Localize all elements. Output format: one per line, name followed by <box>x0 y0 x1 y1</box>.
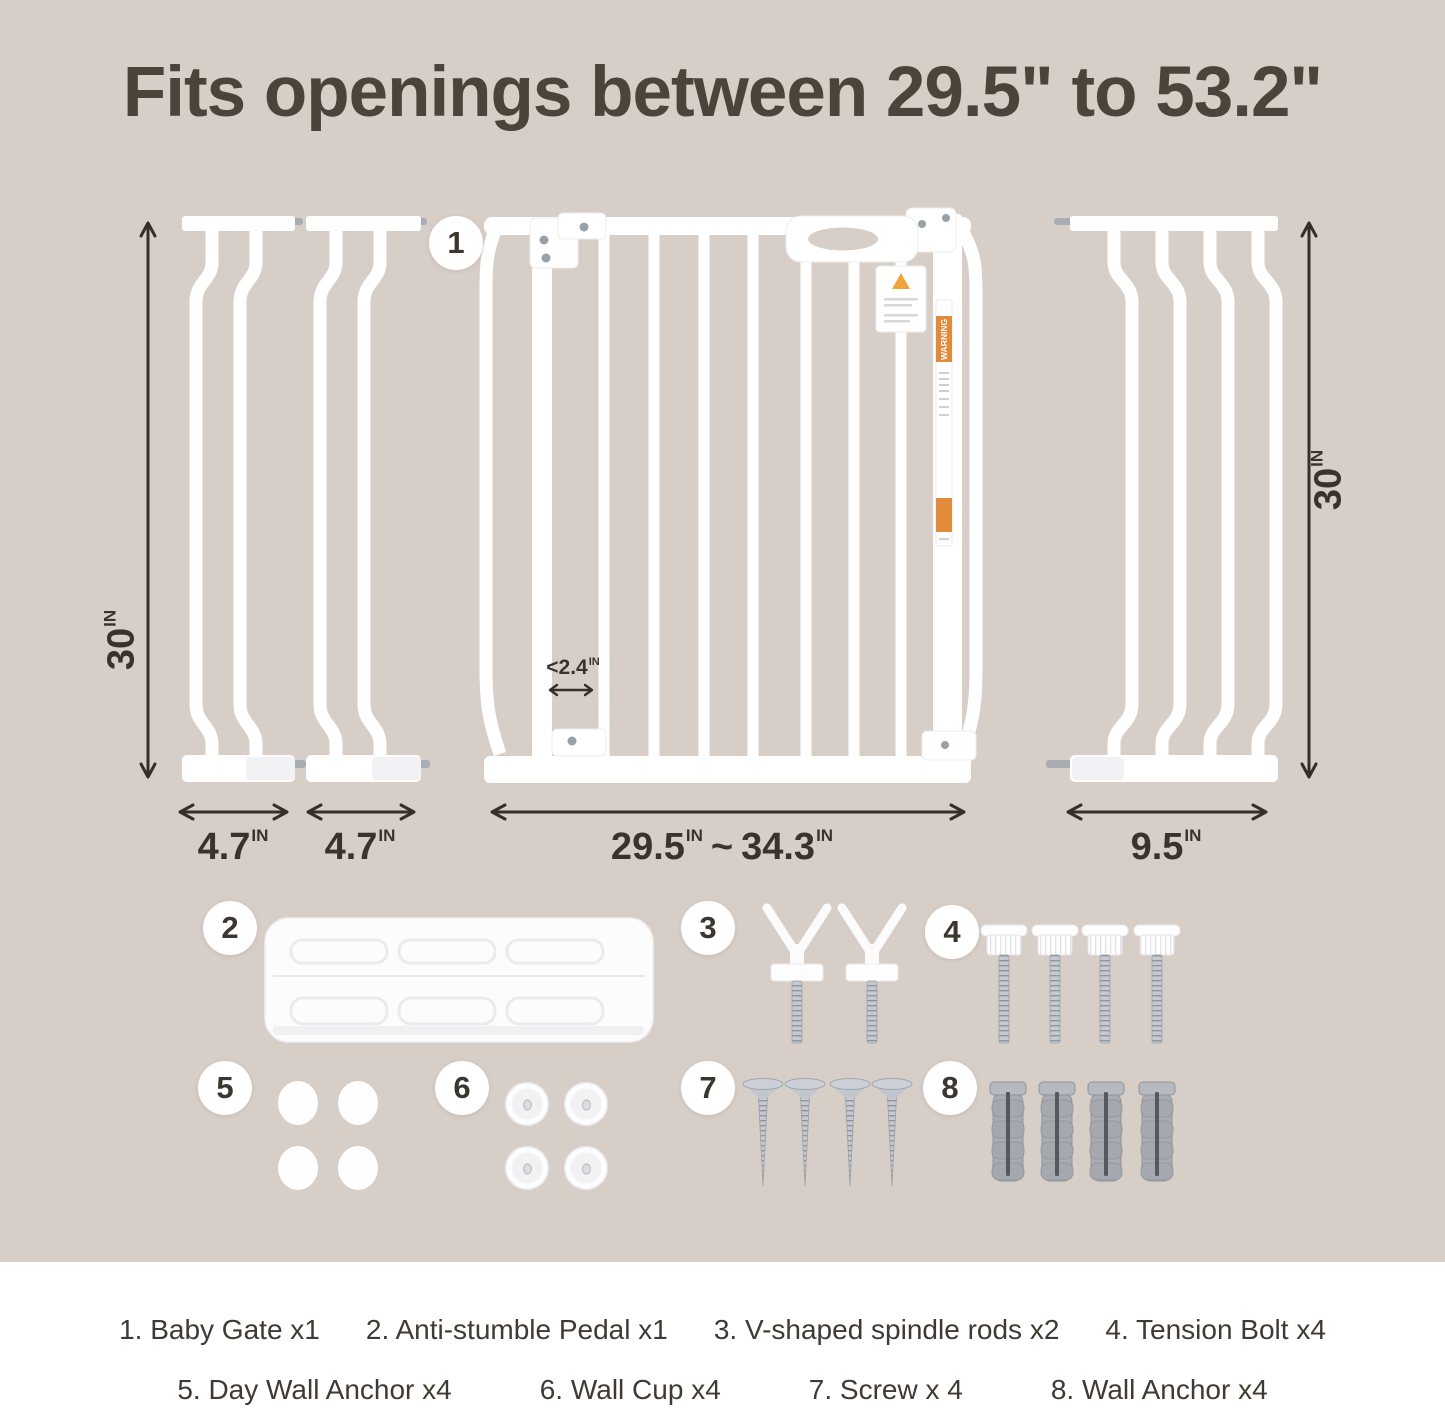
height-measurement-left: 30IN <box>101 610 144 670</box>
extension-panel-left-2 <box>306 216 430 782</box>
bottom-latch-bracket-icon <box>922 731 976 760</box>
screw-illustration <box>785 1079 825 1187</box>
bar-gap-measurement: <2.4IN <box>546 656 599 680</box>
bar-gap-arrow <box>550 685 592 695</box>
hinge-bracket-icon <box>530 213 606 268</box>
gate-width-measurement: 29.5IN~34.3IN <box>611 826 833 869</box>
legend-item-anti-stumble-pedal: 2. Anti-stumble Pedal x1 <box>366 1314 668 1346</box>
part-marker-1: 1 <box>429 216 483 270</box>
legend-item-baby-gate: 1. Baby Gate x1 <box>119 1314 320 1346</box>
wall-anchor-illustration <box>990 1082 1026 1181</box>
ext-left-1-width-measurement: 4.7IN <box>198 826 269 869</box>
width-arrow-ext-right <box>1068 805 1266 819</box>
day-wall-anchor-illustration <box>278 1081 378 1190</box>
wall-anchor-illustration <box>1139 1082 1175 1181</box>
anti-stumble-pedal-illustration <box>265 918 653 1042</box>
gate-handle <box>786 208 956 262</box>
width-arrow-ext-left-2 <box>308 805 414 819</box>
warning-tag-icon <box>876 266 926 332</box>
wall-cup-illustration <box>506 1083 608 1190</box>
ext-right-width-measurement: 9.5IN <box>1131 826 1202 869</box>
v-shaped-spindle-rod-illustration <box>842 908 902 1043</box>
legend-row-2: 5. Day Wall Anchor x4 6. Wall Cup x4 7. … <box>0 1374 1445 1406</box>
legend-item-screw: 7. Screw x 4 <box>809 1374 963 1406</box>
panel-pin-icon <box>1046 760 1074 768</box>
tension-bolt-illustration <box>1032 925 1078 1043</box>
panel-pin-icon <box>1054 218 1072 225</box>
height-arrow-left <box>141 223 155 777</box>
product-diagram: Fits openings between 29.5" to 53.2" <box>0 0 1445 1408</box>
legend-item-spindle-rods: 3. V-shaped spindle rods x2 <box>714 1314 1060 1346</box>
handle-grip-hole <box>808 228 878 251</box>
tension-bolt-illustration <box>1082 925 1128 1043</box>
screw-illustration <box>830 1079 870 1187</box>
diagram-canvas: WARNING <box>0 0 1445 1408</box>
part-marker-7: 7 <box>681 1061 735 1115</box>
tension-bolt-illustration <box>1134 925 1180 1043</box>
part-marker-6: 6 <box>435 1061 489 1115</box>
width-arrow-ext-left-1 <box>180 805 287 819</box>
baby-gate-illustration: WARNING <box>484 208 976 783</box>
tension-bolt-illustration <box>981 925 1027 1043</box>
v-shaped-spindle-rod-illustration <box>767 908 827 1043</box>
legend-row-1: 1. Baby Gate x1 2. Anti-stumble Pedal x1… <box>0 1314 1445 1346</box>
part-marker-2: 2 <box>203 901 257 955</box>
part-marker-8: 8 <box>923 1061 977 1115</box>
width-arrow-gate <box>492 805 964 819</box>
extension-panel-left-1 <box>182 216 306 782</box>
bottom-hinge-bracket-icon <box>552 729 606 756</box>
extension-panel-right <box>1046 216 1278 782</box>
ext-left-2-width-measurement: 4.7IN <box>325 826 396 869</box>
screw-illustration <box>872 1079 912 1187</box>
svg-text:WARNING: WARNING <box>939 319 949 360</box>
part-marker-3: 3 <box>681 901 735 955</box>
height-measurement-right: 30IN <box>1308 450 1351 510</box>
legend-item-day-wall-anchor: 5. Day Wall Anchor x4 <box>177 1374 451 1406</box>
part-marker-5: 5 <box>198 1061 252 1115</box>
wall-anchor-illustration <box>1088 1082 1124 1181</box>
legend-item-wall-cup: 6. Wall Cup x4 <box>540 1374 721 1406</box>
screw-illustration <box>743 1079 783 1187</box>
part-marker-4: 4 <box>925 905 979 959</box>
wall-anchor-illustration <box>1039 1082 1075 1181</box>
warning-strip-icon: WARNING <box>936 300 952 546</box>
legend-item-wall-anchor: 8. Wall Anchor x4 <box>1051 1374 1268 1406</box>
legend-item-tension-bolt: 4. Tension Bolt x4 <box>1105 1314 1326 1346</box>
